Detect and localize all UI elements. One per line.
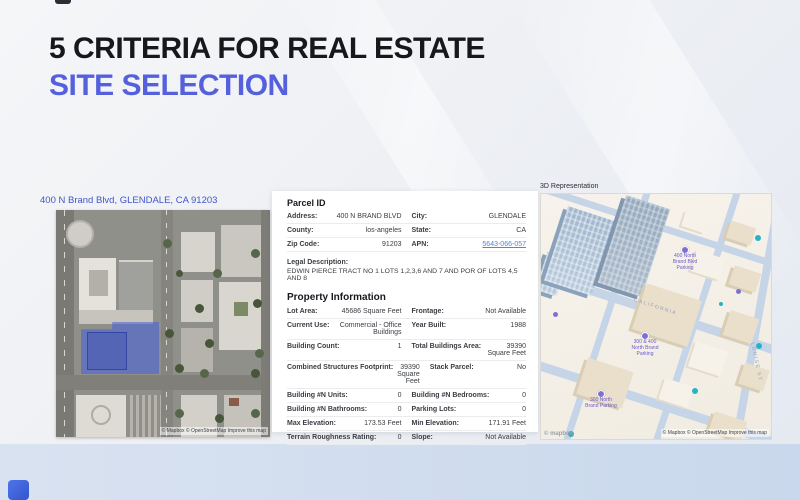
field-value: 91203 [382, 241, 401, 248]
field-value: 1988 [510, 322, 526, 336]
parcel-row: Address:400 N BRAND BLVD City:GLENDALE [287, 210, 526, 224]
field-label: Lot Area: [287, 308, 317, 315]
field-value: 39390 Square Feet [397, 364, 420, 385]
property-row: Max Elevation:173.53 Feet Min Elevation:… [287, 417, 526, 431]
map-attribution: © Mapbox © OpenStreetMap Improve this ma… [661, 429, 769, 437]
property-row: Current Use:Commercial - Office Building… [287, 319, 526, 340]
field-label: Frontage: [412, 308, 444, 315]
field-value: Commercial - Office Buildings [340, 322, 402, 336]
lane-marking [166, 210, 167, 437]
building [729, 265, 762, 293]
field-label: Parking Lots: [412, 406, 457, 413]
legal-description-label: Legal Description: [287, 259, 526, 266]
parking-marker-label: 300 & 400 North Brand Parking [627, 340, 663, 357]
building [681, 211, 709, 234]
field-value: 45686 Square Feet [342, 308, 402, 315]
plaza [79, 310, 153, 324]
parcel-row: Zip Code:91203 APN:5643-066-057 [287, 238, 526, 252]
building-roof [66, 220, 94, 248]
parcel-id-header: Parcel ID [287, 198, 526, 208]
field-label: State: [412, 227, 431, 234]
field-label: Building #N Units: [287, 392, 348, 399]
parcel-row: County:los-angeles State:CA [287, 224, 526, 238]
field-value: 171.91 Feet [489, 420, 526, 427]
field-label: Total Buildings Area: [412, 343, 482, 357]
street [56, 375, 270, 390]
logo-mark [55, 0, 71, 4]
field-label: Min Elevation: [412, 420, 459, 427]
helipad [91, 405, 111, 425]
parcel-building-footprint [87, 332, 127, 370]
field-label: Combined Structures Footprint: [287, 364, 393, 385]
field-label: Max Elevation: [287, 420, 336, 427]
field-label: APN: [412, 241, 429, 248]
title-line-2: SITE SELECTION [49, 67, 485, 104]
building-roof [229, 398, 239, 406]
property-row: Building #N Units:0 Building #N Bedrooms… [287, 389, 526, 403]
field-value: 0 [398, 392, 402, 399]
field-value: 1 [398, 343, 402, 357]
field-value: GLENDALE [489, 213, 526, 220]
satellite-map: © Mapbox © OpenStreetMap Improve this ma… [56, 210, 270, 437]
property-row: Building Count:1 Total Buildings Area:39… [287, 340, 526, 361]
street [261, 210, 270, 437]
field-value: los-angeles [366, 227, 402, 234]
field-value: 0 [522, 392, 526, 399]
field-value: No [517, 364, 526, 385]
building-roof [181, 280, 213, 322]
field-value: Not Available [485, 434, 526, 441]
field-value: 0 [522, 406, 526, 413]
slide-title: 5 CRITERIA FOR REAL ESTATE SITE SELECTIO… [49, 30, 485, 104]
property-row: Building #N Bathrooms:0 Parking Lots:0 [287, 403, 526, 417]
field-value: 173.53 Feet [364, 420, 401, 427]
field-label: City: [412, 213, 428, 220]
field-value: CA [516, 227, 526, 234]
legal-description: Legal Description: EDWIN PIERCE TRACT NO… [287, 259, 526, 282]
parking-structure [130, 395, 161, 437]
field-value: 39390 Square Feet [485, 343, 526, 357]
corner-decoration [8, 480, 29, 500]
legal-description-text: EDWIN PIERCE TRACT NO 1 LOTS 1,2,3,6 AND… [287, 268, 526, 282]
field-value: 0 [398, 406, 402, 413]
slide-canvas: 5 CRITERIA FOR REAL ESTATE SITE SELECTIO… [0, 0, 800, 500]
building-roof [219, 282, 261, 350]
property-address: 400 N Brand Blvd, GLENDALE, CA 91203 [40, 195, 217, 206]
poi-dots [553, 312, 558, 317]
building [688, 341, 728, 376]
map-attribution: © Mapbox © OpenStreetMap Improve this ma… [160, 427, 268, 435]
parking-marker-label: 300 North Brand Parking [583, 398, 619, 410]
parking-marker-label: 400 North Brand Blvd Parking [667, 254, 703, 271]
parcel-card: Parcel ID Address:400 N BRAND BLVD City:… [272, 191, 538, 432]
field-label: Building Count: [287, 343, 339, 357]
poi-dots [719, 302, 723, 306]
3d-map: 400 North Brand Blvd Parking 300 & 400 N… [540, 193, 772, 440]
building-roof [221, 225, 261, 277]
field-label: Stack Parcel: [430, 364, 474, 385]
courtyard [234, 302, 248, 316]
field-label: Building #N Bedrooms: [412, 392, 490, 399]
field-label: Terrain Roughness Rating: [287, 434, 376, 441]
apn-link[interactable]: 5643-066-057 [482, 241, 526, 248]
property-row: Combined Structures Footprint:39390 Squa… [287, 361, 526, 389]
field-value: 0 [398, 434, 402, 441]
field-value: 400 N BRAND BLVD [337, 213, 402, 220]
property-row: Lot Area:45686 Square Feet Frontage:Not … [287, 305, 526, 319]
field-value: Not Available [485, 308, 526, 315]
field-label: Year Built: [412, 322, 447, 336]
bottom-band [0, 444, 800, 500]
property-info-header: Property Information [287, 292, 526, 303]
field-label: Slope: [412, 434, 433, 441]
title-line-1: 5 CRITERIA FOR REAL ESTATE [49, 30, 485, 67]
rooftop-court [89, 270, 108, 296]
property-row: Terrain Roughness Rating:0 Slope:Not Ava… [287, 431, 526, 445]
building-roof [181, 328, 213, 372]
3d-panel-label: 3D Representation [540, 183, 598, 190]
field-label: County: [287, 227, 313, 234]
field-label: Building #N Bathrooms: [287, 406, 367, 413]
field-label: Current Use: [287, 322, 329, 336]
mapbox-logo: © mapbox [544, 431, 573, 437]
lane-marking [64, 210, 65, 437]
field-label: Zip Code: [287, 241, 319, 248]
field-label: Address: [287, 213, 317, 220]
trees [176, 270, 183, 277]
building-roof [181, 232, 215, 272]
street [161, 210, 173, 437]
building [726, 220, 756, 245]
